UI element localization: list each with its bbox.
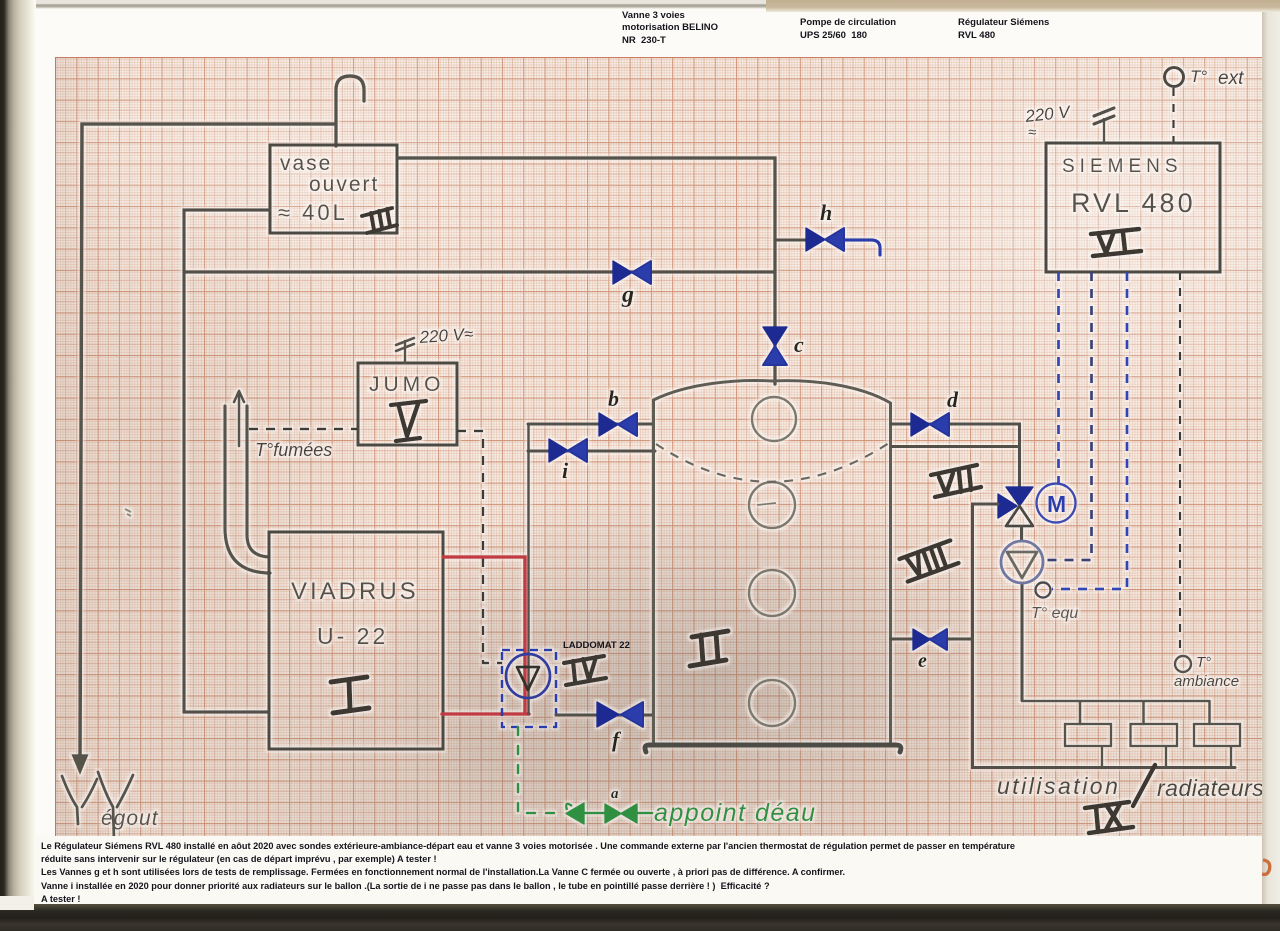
svg-text:220 V: 220 V [1023,102,1072,126]
svg-text:ouvert: ouvert [309,173,379,196]
svg-text:a: a [611,786,619,802]
svg-text:ext: ext [1218,68,1244,89]
svg-text:VIADRUS: VIADRUS [291,578,419,605]
svg-text:appoint déau: appoint déau [654,799,817,827]
svg-text:≈: ≈ [1028,124,1036,141]
svg-text:f: f [612,727,622,752]
svg-text:i: i [562,458,569,483]
svg-text:b: b [608,386,619,411]
svg-text:utilisation: utilisation [997,773,1120,799]
svg-text:RVL 480: RVL 480 [1071,188,1196,218]
svg-text:ambiance: ambiance [1174,673,1239,690]
svg-text:220 V≈: 220 V≈ [418,324,475,347]
svg-text:e: e [918,650,927,672]
svg-text:radiateurs: radiateurs [1157,775,1264,801]
svg-text:vase: vase [280,152,332,175]
svg-text:SIEMENS: SIEMENS [1062,156,1183,177]
svg-text:égout: égout [101,807,159,830]
svg-text:T°: T° [1196,654,1211,671]
svg-text:c: c [794,332,804,357]
svg-text:M: M [1047,491,1066,517]
svg-text:JUMO: JUMO [369,373,445,396]
svg-text:T°fumées: T°fumées [255,440,332,460]
svg-text:≈ 40L: ≈ 40L [278,200,348,225]
svg-text:g: g [621,282,634,308]
svg-text:h: h [820,200,832,225]
svg-text:T°: T° [1190,67,1207,86]
svg-text:U- 22: U- 22 [317,623,388,649]
svg-text:d: d [947,387,959,412]
svg-text:T° equ: T° equ [1031,605,1078,622]
